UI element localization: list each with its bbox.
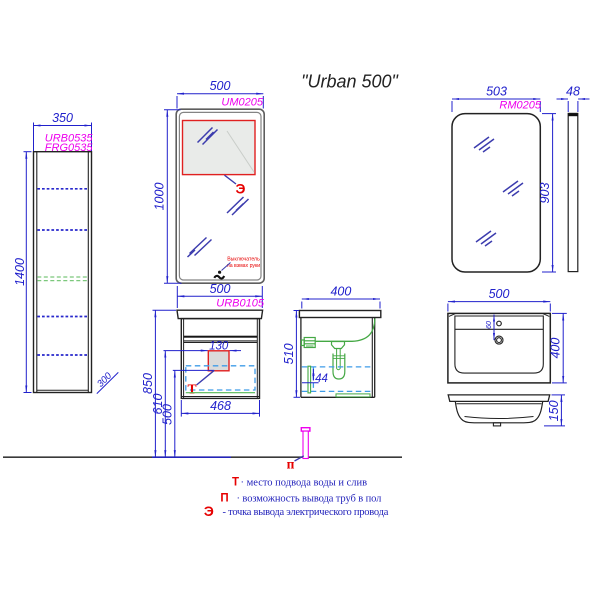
svg-text:500: 500 — [210, 282, 231, 296]
svg-text:· место подвода воды и слив: · место подвода воды и слив — [241, 478, 368, 489]
svg-text:Э: Э — [236, 181, 246, 197]
svg-text:500: 500 — [210, 79, 231, 93]
svg-text:400: 400 — [549, 338, 563, 359]
svg-text:903: 903 — [538, 183, 552, 204]
svg-text:850: 850 — [141, 373, 155, 394]
svg-text:UM0205: UM0205 — [221, 97, 263, 109]
svg-text:· возможность вывода труб в по: · возможность вывода труб в пол — [237, 494, 382, 505]
svg-text:510: 510 — [282, 343, 296, 364]
svg-text:400: 400 — [330, 285, 351, 299]
svg-text:350: 350 — [52, 111, 73, 125]
svg-text:500: 500 — [489, 287, 510, 301]
svg-text:60: 60 — [486, 321, 493, 329]
svg-text:RM0205: RM0205 — [499, 100, 541, 112]
svg-text:1400: 1400 — [13, 258, 27, 286]
svg-text:150: 150 — [547, 400, 561, 421]
svg-text:Т: Т — [232, 477, 239, 489]
svg-text:URB0105: URB0105 — [216, 298, 265, 310]
svg-text:44: 44 — [315, 373, 328, 385]
svg-text:503: 503 — [486, 85, 507, 99]
svg-text:1000: 1000 — [153, 183, 167, 211]
svg-text:на взмах руки: на взмах руки — [227, 263, 260, 269]
svg-text:"Urban 500": "Urban 500" — [301, 72, 399, 92]
svg-text:- точка вывода электрического: - точка вывода электрического провода — [223, 507, 389, 518]
svg-text:500: 500 — [160, 404, 174, 425]
svg-text:Т: Т — [187, 382, 196, 397]
svg-text:48: 48 — [566, 85, 580, 99]
svg-text:468: 468 — [210, 399, 231, 413]
svg-text:п: п — [287, 457, 295, 472]
svg-text:П: П — [220, 493, 228, 505]
svg-text:Э: Э — [204, 503, 214, 519]
svg-text:Выключатель: Выключатель — [227, 257, 260, 263]
